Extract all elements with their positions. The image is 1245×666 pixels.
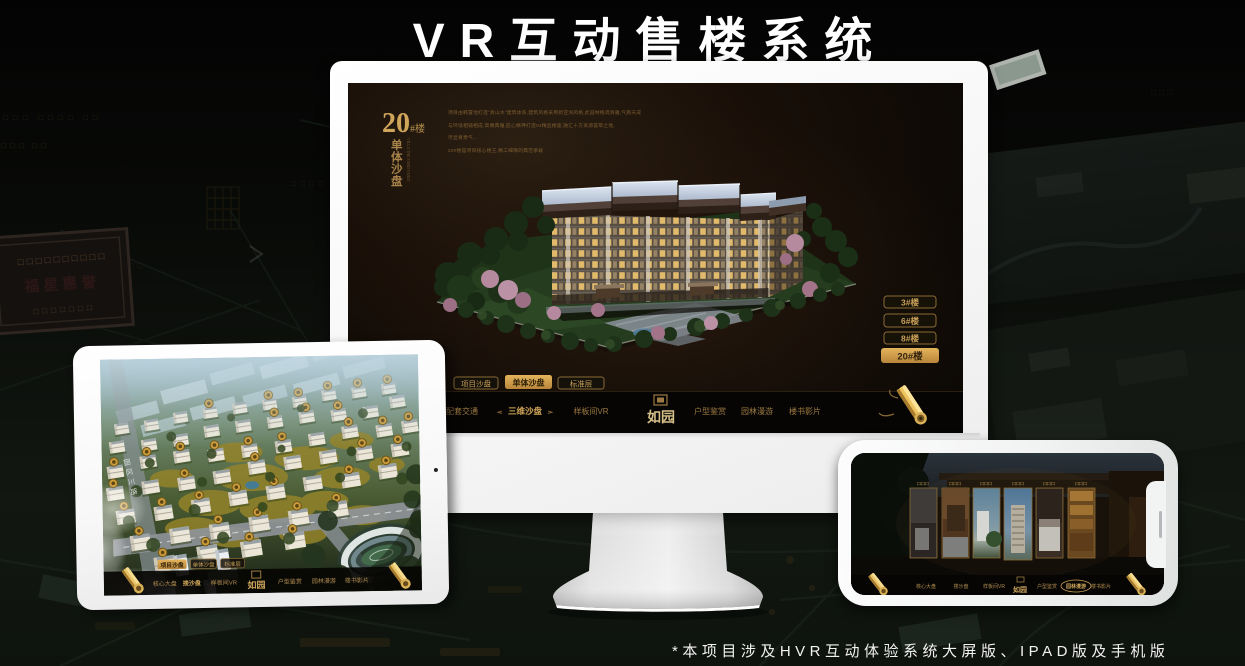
svg-text:口口口: 口口口 — [1150, 89, 1174, 97]
svg-text:标准层: 标准层 — [570, 379, 593, 389]
svg-text:配套交通: 配套交通 — [446, 406, 478, 416]
svg-text:口口口 口口口口 口口: 口口口 口口口口 口口 — [2, 114, 102, 122]
svg-text:口口口: 口口口 — [917, 481, 929, 486]
svg-text:20#楼: 20#楼 — [897, 351, 923, 363]
svg-text:尽显尊贵气...: 尽显尊贵气... — [448, 134, 478, 141]
svg-text:VILLA THE SAND TABLE: VILLA THE SAND TABLE — [406, 138, 410, 182]
svg-text:口口: 口口 — [1185, 124, 1201, 132]
svg-text:如园: 如园 — [247, 579, 265, 590]
svg-text:三维沙盘: 三维沙盘 — [508, 406, 543, 416]
svg-text:楼书影片: 楼书影片 — [789, 406, 821, 416]
svg-text:如园: 如园 — [1013, 585, 1027, 594]
svg-text:单体沙盘: 单体沙盘 — [513, 378, 545, 388]
svg-text:20: 20 — [382, 108, 410, 139]
svg-text:口口口: 口口口 — [949, 481, 961, 486]
svg-text:园林漫游: 园林漫游 — [1066, 583, 1086, 590]
svg-text:项目由韩置地打造"真山水"建筑体系,建筑风格采用新亚洲风格,: 项目由韩置地打造"真山水"建筑体系,建筑风格采用新亚洲风格,此园林格调清雅,气质… — [448, 109, 641, 116]
svg-text:标准层: 标准层 — [224, 560, 241, 568]
svg-text:盘: 盘 — [391, 174, 403, 188]
svg-text:3#楼: 3#楼 — [901, 298, 919, 308]
svg-text:口口口: 口口口 — [980, 481, 992, 486]
svg-text:核心大盘: 核心大盘 — [916, 583, 936, 590]
svg-text:口口口: 口口口 — [1075, 481, 1087, 486]
svg-text:#楼: #楼 — [410, 122, 425, 135]
svg-text:口口口 口口: 口口口 口口 — [0, 142, 49, 150]
svg-text:体: 体 — [391, 150, 403, 164]
svg-text:如园: 如园 — [647, 409, 675, 426]
svg-text:口口口: 口口口 — [1012, 481, 1024, 486]
svg-text:与环境相辅相成,高端典雅,匠心精神打造04精品楼座,融汇十方: 与环境相辅相成,高端典雅,匠心精神打造04精品楼座,融汇十方资源荟萃之地, — [448, 122, 615, 129]
svg-text:户型鉴赏: 户型鉴赏 — [1037, 583, 1057, 590]
svg-text:8#楼: 8#楼 — [901, 334, 919, 344]
svg-text:搂沙盘: 搂沙盘 — [953, 583, 968, 590]
svg-text:单: 单 — [391, 138, 403, 152]
svg-text:6#楼: 6#楼 — [901, 316, 919, 326]
svg-text:口口口: 口口口 — [1043, 481, 1055, 486]
svg-text:口口口口: 口口口口 — [290, 180, 326, 188]
svg-text:园林漫游: 园林漫游 — [741, 406, 773, 416]
svg-text:20#楼是项目核心楼王,精工细琢的典范承载: 20#楼是项目核心楼王,精工细琢的典范承载 — [448, 147, 543, 154]
svg-text:户型鉴赏: 户型鉴赏 — [694, 406, 726, 416]
svg-text:项目沙盘: 项目沙盘 — [461, 379, 491, 389]
svg-text:样板间VR: 样板间VR — [573, 406, 608, 416]
svg-text:沙: 沙 — [391, 163, 403, 176]
svg-text:样板间VR: 样板间VR — [983, 583, 1005, 590]
svg-text:楼书影片: 楼书影片 — [1091, 583, 1111, 590]
